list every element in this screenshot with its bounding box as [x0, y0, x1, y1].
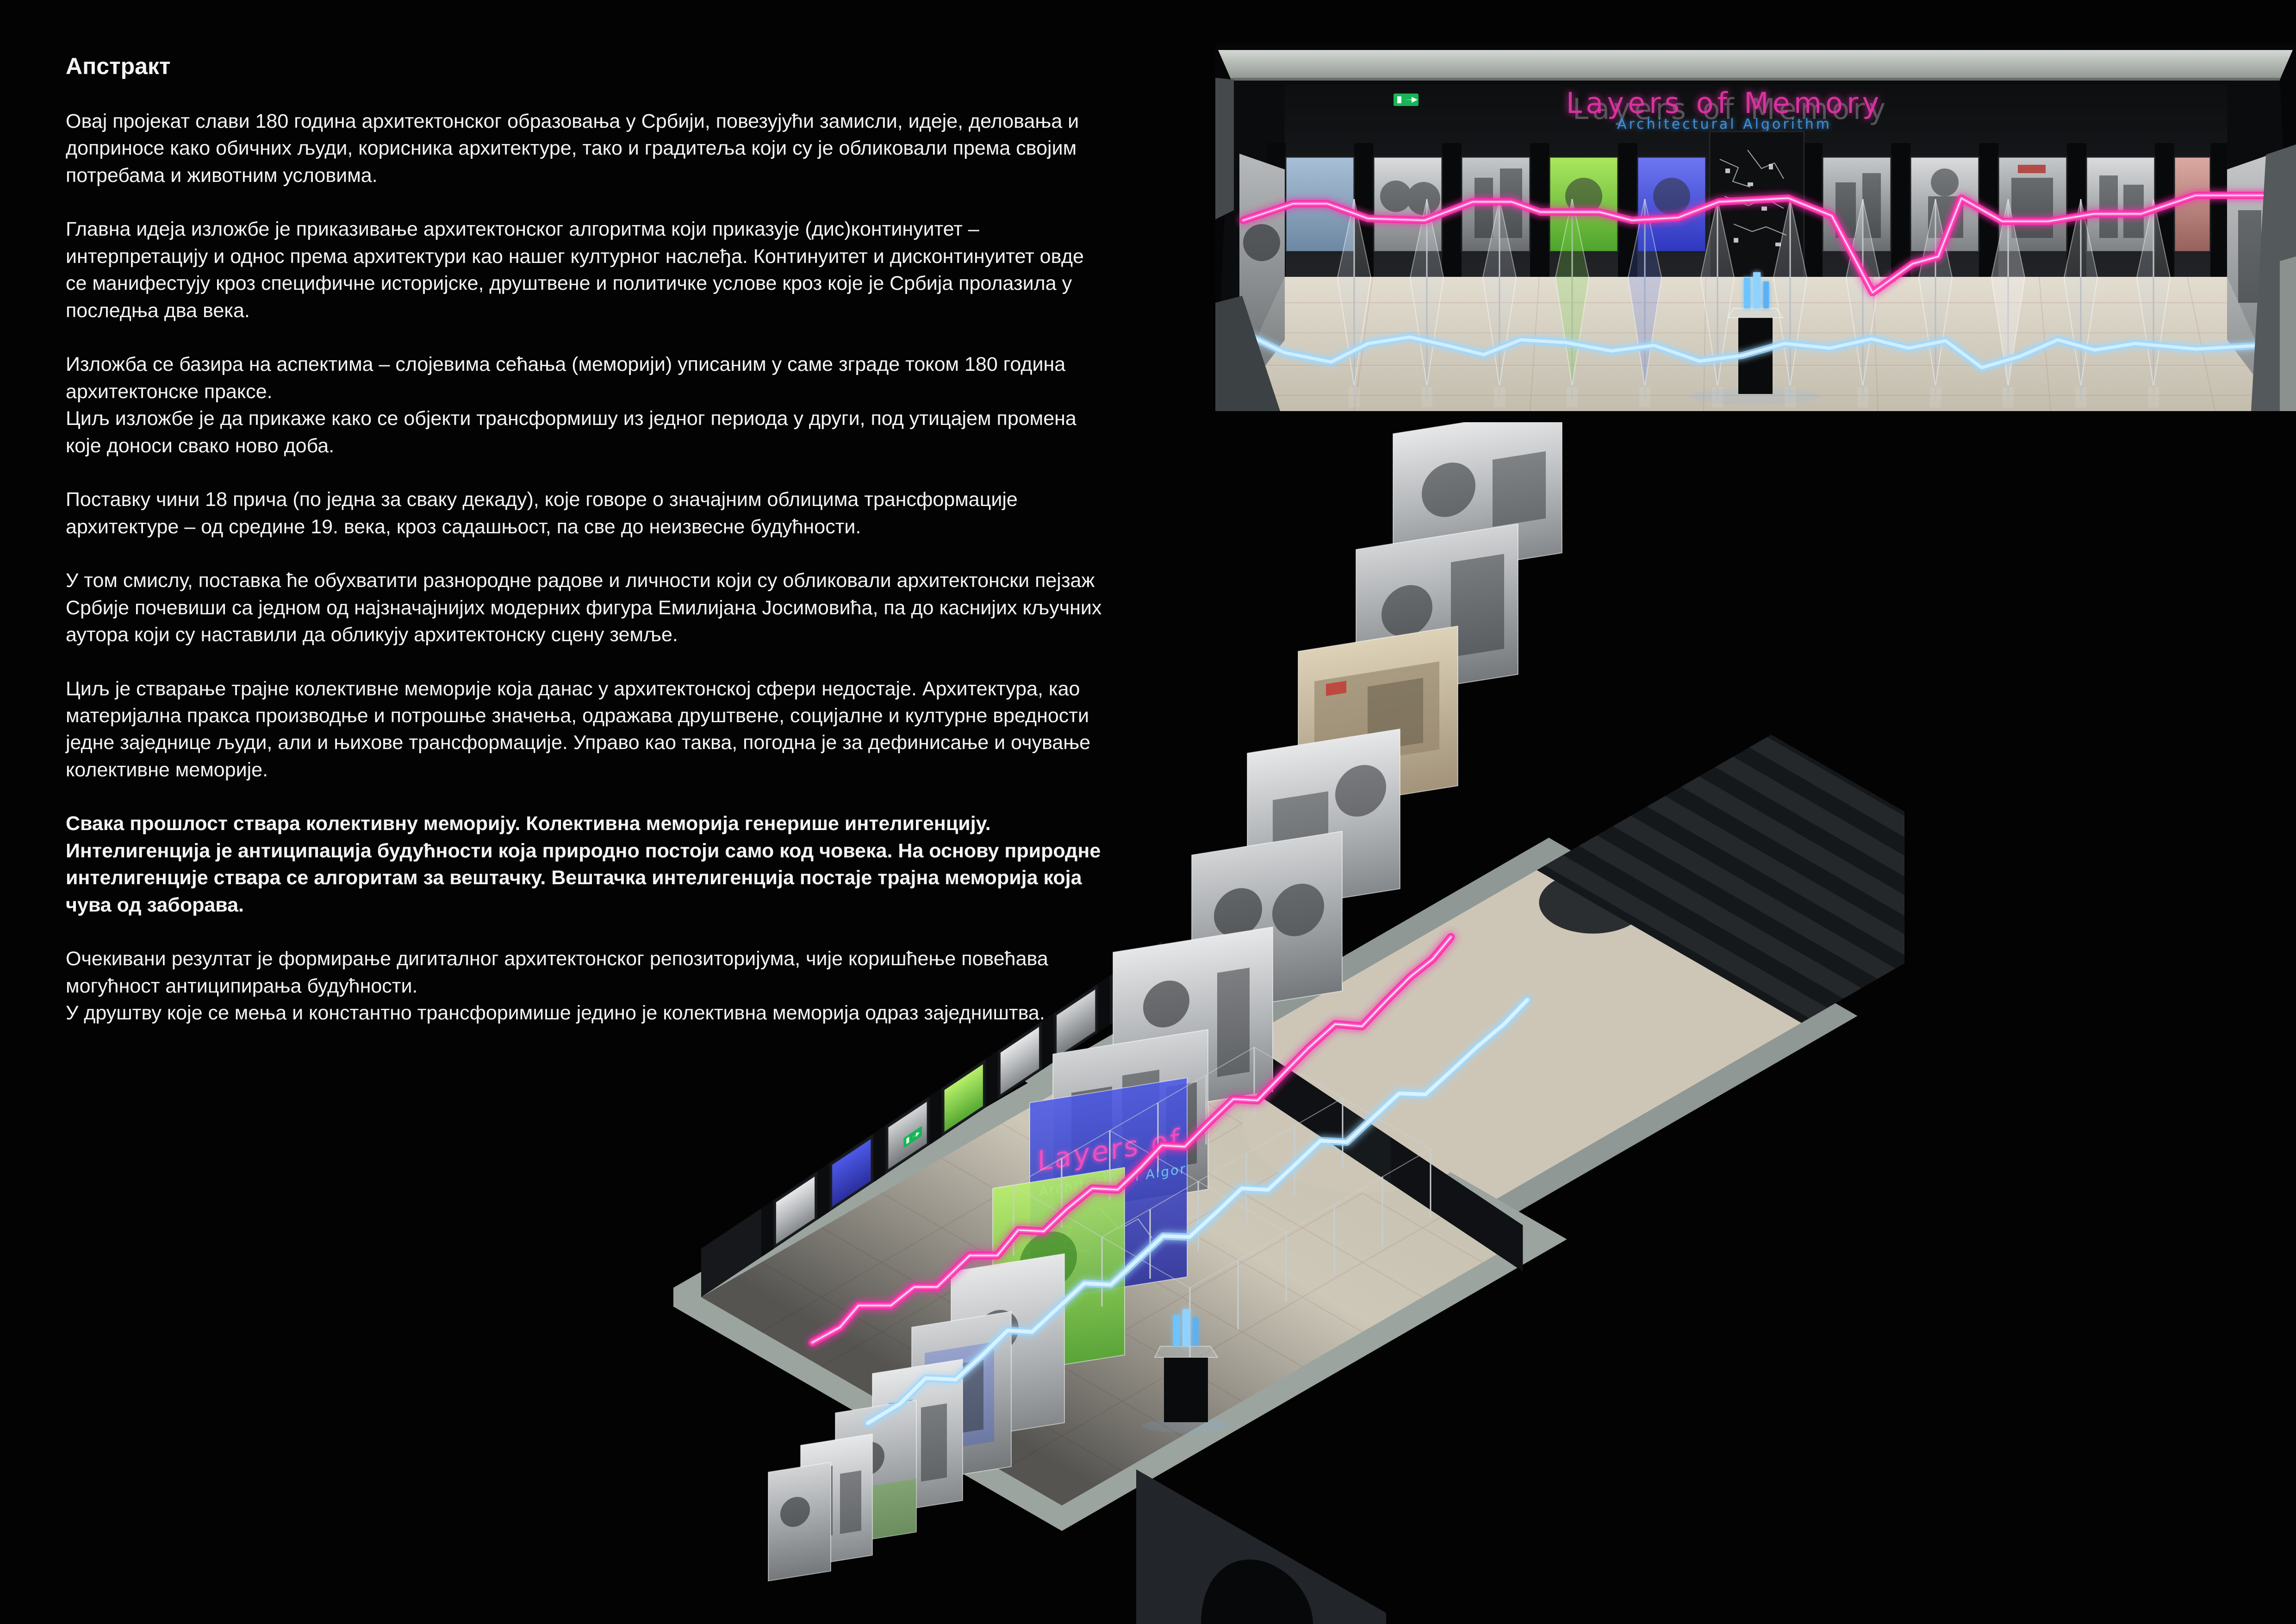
abstract-title: Апстракт	[66, 54, 1105, 79]
ceiling-frame-band	[1218, 50, 2293, 80]
exit-sign-icon	[1394, 94, 1419, 106]
right-panel-building	[2238, 210, 2261, 303]
frame-edge	[1231, 78, 2280, 81]
abstract-paragraph-1: Овај пројекат слави 180 година архитекто…	[66, 108, 1105, 189]
right-cut-wall-light	[2280, 256, 2296, 411]
exhibition-axonometric-render: Layers of Memory Architectural Algorithm	[673, 422, 1904, 1624]
neon-sign-subtitle: Architectural Algorithm	[1617, 116, 1832, 132]
left-frame-return	[1215, 78, 1234, 219]
left-panel-figure	[1243, 224, 1280, 261]
exhibition-interior-render: Layers of Memory Layers of Memory Archit…	[1215, 44, 2296, 411]
neon-sign: Layers of Memory Layers of Memory Archit…	[1566, 86, 1890, 132]
arch-wall-face	[1136, 1469, 1386, 1624]
neon-sign-title: Layers of Memory	[1566, 86, 1883, 120]
cascade-panel	[768, 1462, 831, 1581]
red-roof-accent	[2018, 165, 2046, 173]
abstract-paragraph-2: Главна идеја изложбе је приказивање архи…	[66, 216, 1105, 324]
